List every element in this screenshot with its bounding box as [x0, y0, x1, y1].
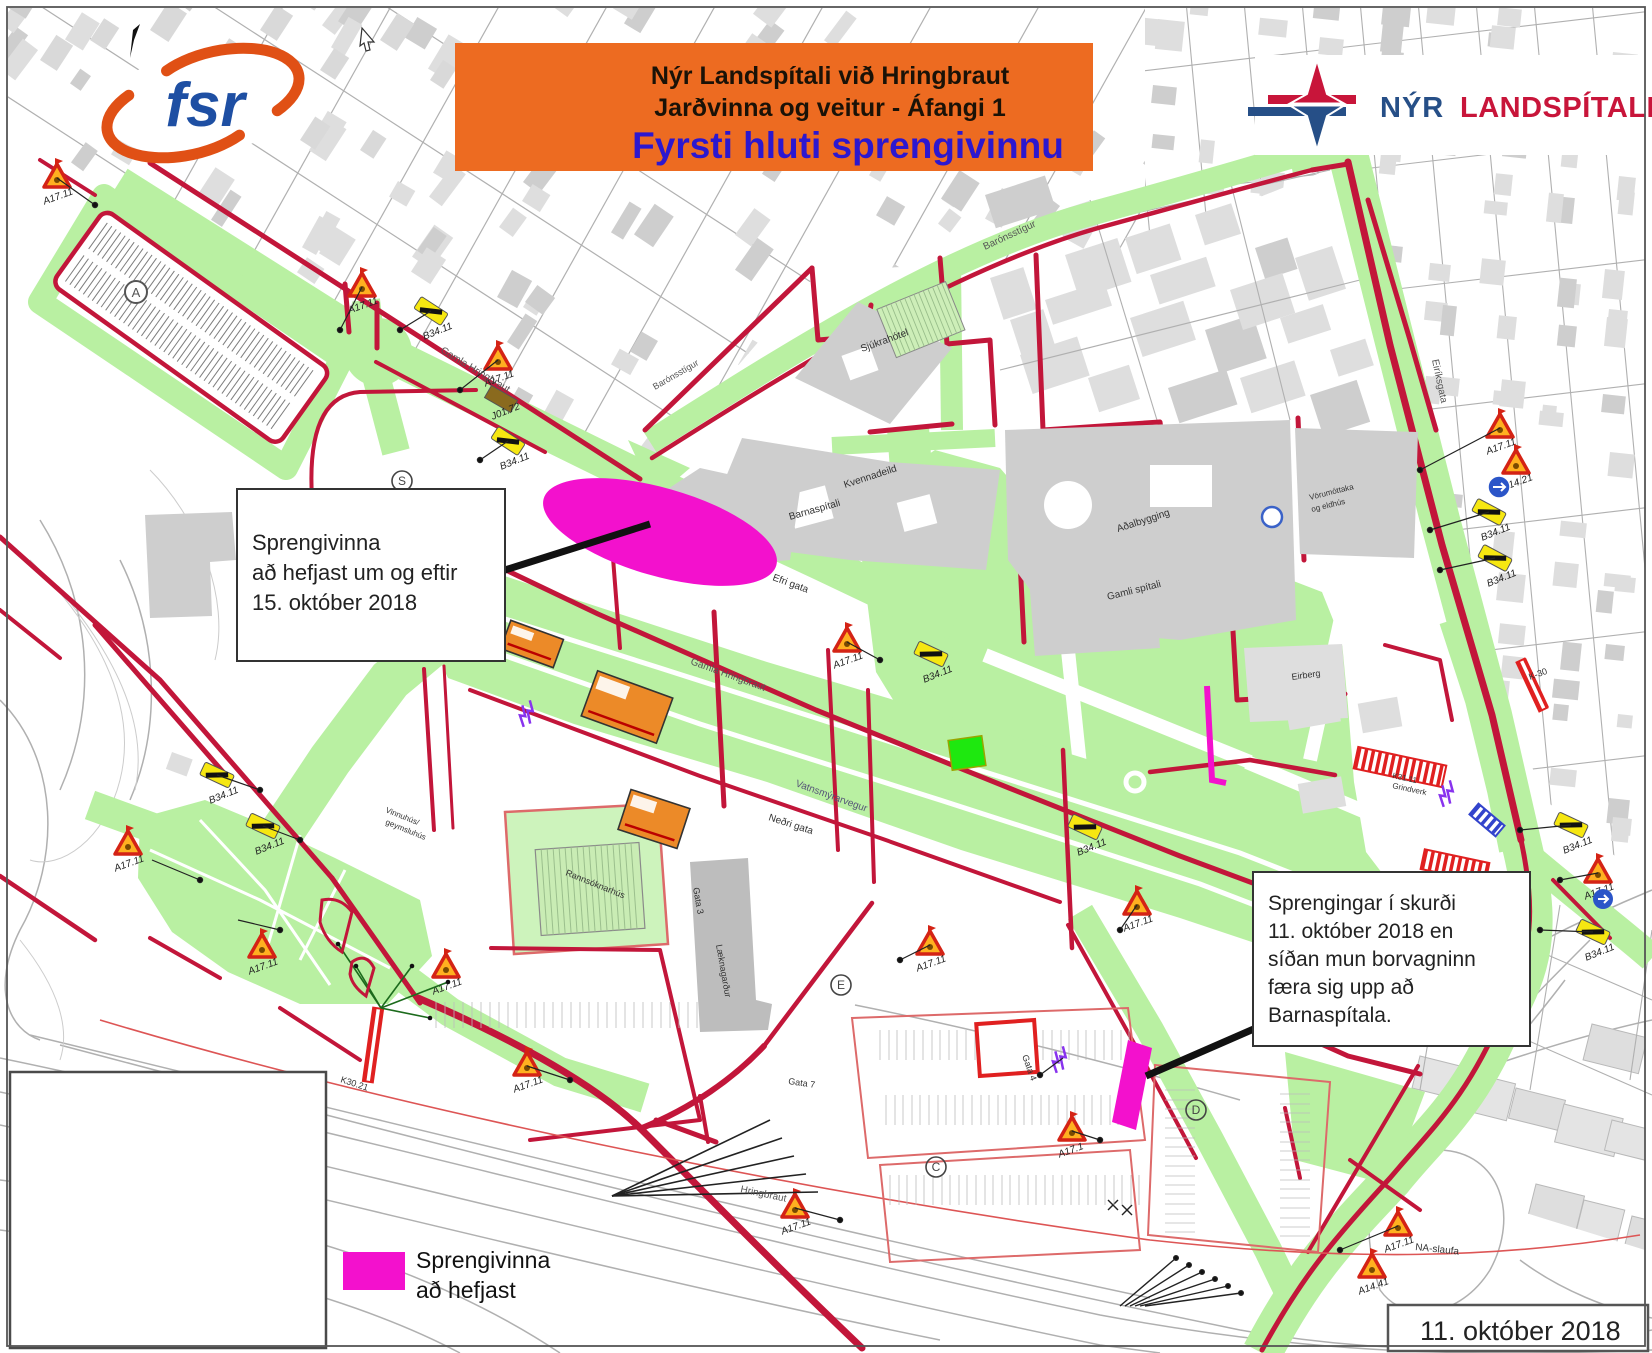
svg-text:C: C — [932, 1160, 941, 1174]
svg-text:11. október 2018 en: 11. október 2018 en — [1268, 920, 1453, 943]
svg-text:NÝR: NÝR — [1380, 90, 1444, 124]
svg-text:Nýr Landspítali við Hringbraut: Nýr Landspítali við Hringbraut — [651, 62, 1010, 90]
svg-text:Barnaspítala.: Barnaspítala. — [1268, 1004, 1392, 1027]
svg-text:D: D — [1192, 1103, 1201, 1117]
svg-text:að hefjast um og eftir: að hefjast um og eftir — [252, 560, 457, 585]
svg-text:15. október 2018: 15. október 2018 — [252, 590, 417, 615]
svg-text:að hefjast: að hefjast — [416, 1277, 516, 1303]
svg-text:Sprengivinna: Sprengivinna — [252, 530, 381, 555]
svg-text:11. október 2018: 11. október 2018 — [1420, 1316, 1621, 1346]
svg-text:Sprengingar í skurði: Sprengingar í skurði — [1268, 892, 1456, 915]
svg-text:A: A — [132, 285, 141, 300]
svg-text:færa sig upp að: færa sig upp að — [1268, 976, 1414, 999]
svg-text:Sprengivinna: Sprengivinna — [416, 1247, 550, 1273]
svg-text:LANDSPÍTALI: LANDSPÍTALI — [1460, 90, 1652, 124]
svg-text:fsr: fsr — [165, 71, 247, 140]
svg-text:Fyrsti hluti sprengivinnu: Fyrsti hluti sprengivinnu — [632, 125, 1064, 166]
svg-text:E: E — [837, 978, 845, 992]
svg-text:S: S — [398, 474, 406, 488]
svg-text:síðan mun borvagninn: síðan mun borvagninn — [1268, 948, 1476, 971]
svg-text:Jarðvinna og veitur - Áfangi 1: Jarðvinna og veitur - Áfangi 1 — [654, 93, 1006, 122]
